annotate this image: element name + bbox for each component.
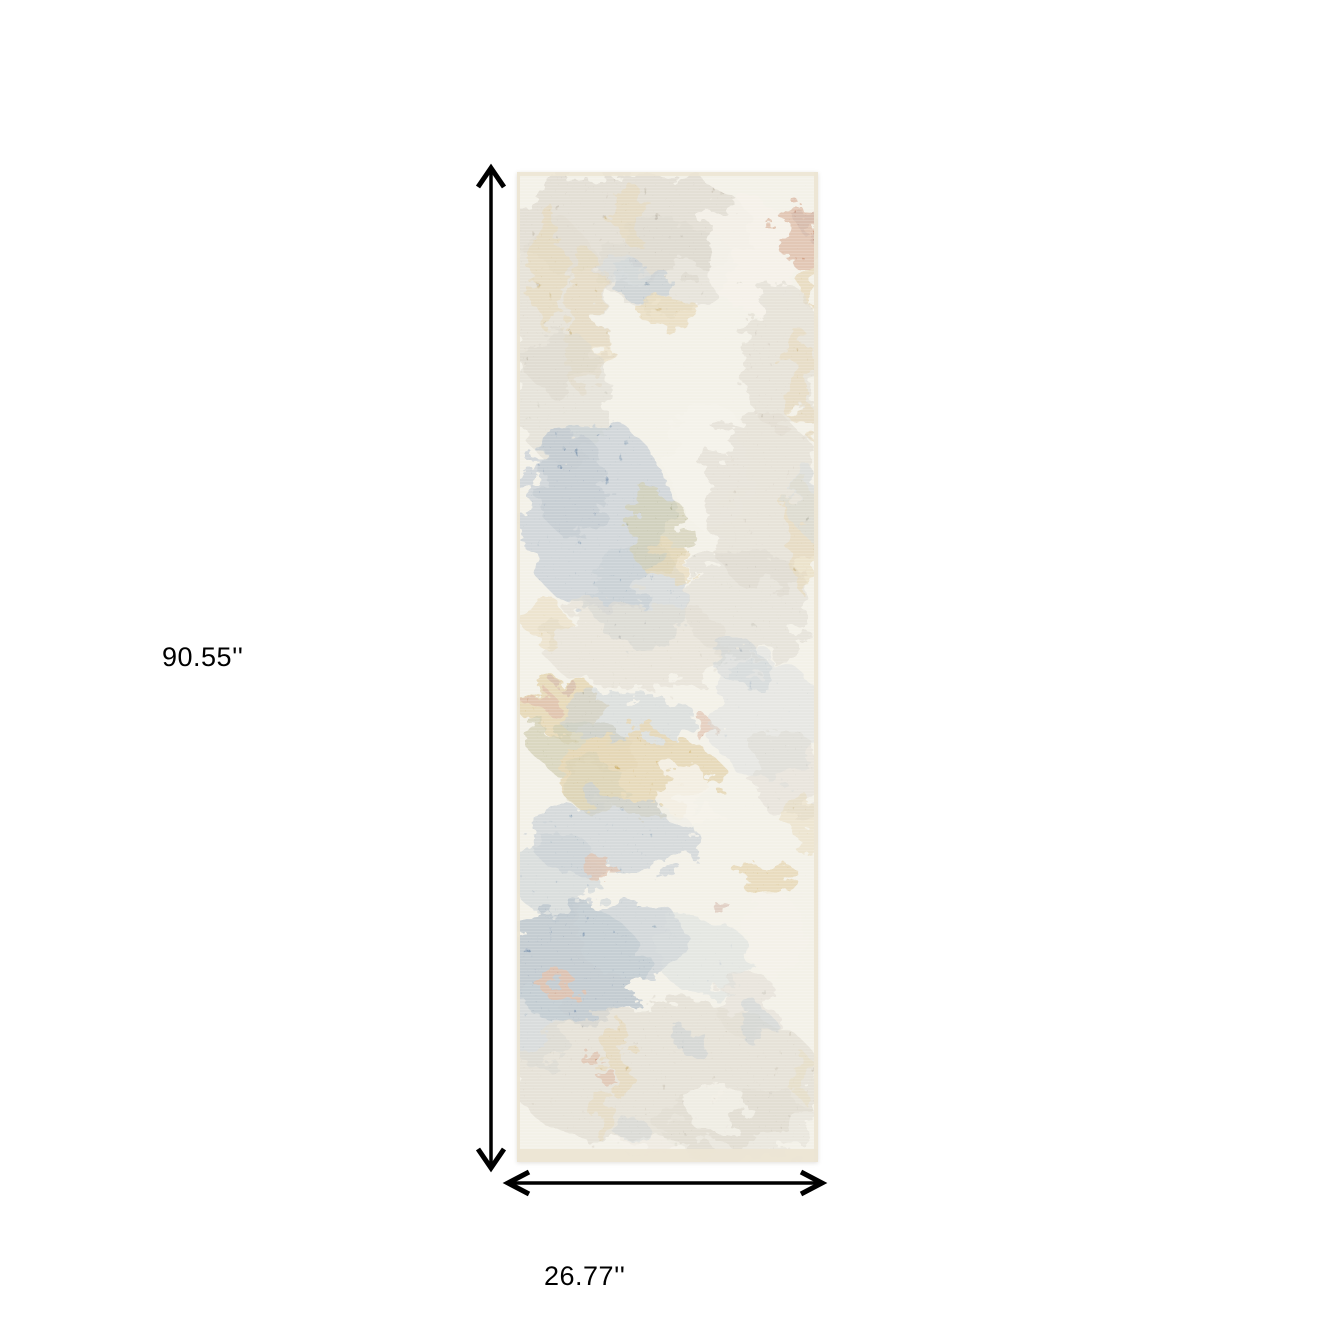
width-dimension-label: 26.77'' [544,1261,625,1292]
rug-edge-left [517,172,520,1162]
rug-edge-bottom [517,1149,818,1162]
rug-edge-right [814,172,818,1162]
height-dimension-arrow [471,158,511,1178]
rug-svg [517,172,818,1162]
height-dimension-label: 90.55'' [162,642,243,673]
dimension-diagram: 90.55'' 26.77'' [0,0,1331,1331]
rug-striation-overlay [517,172,818,1162]
rug-edge-top [517,172,818,176]
width-dimension-arrow [496,1165,828,1201]
rug-image [517,172,818,1162]
